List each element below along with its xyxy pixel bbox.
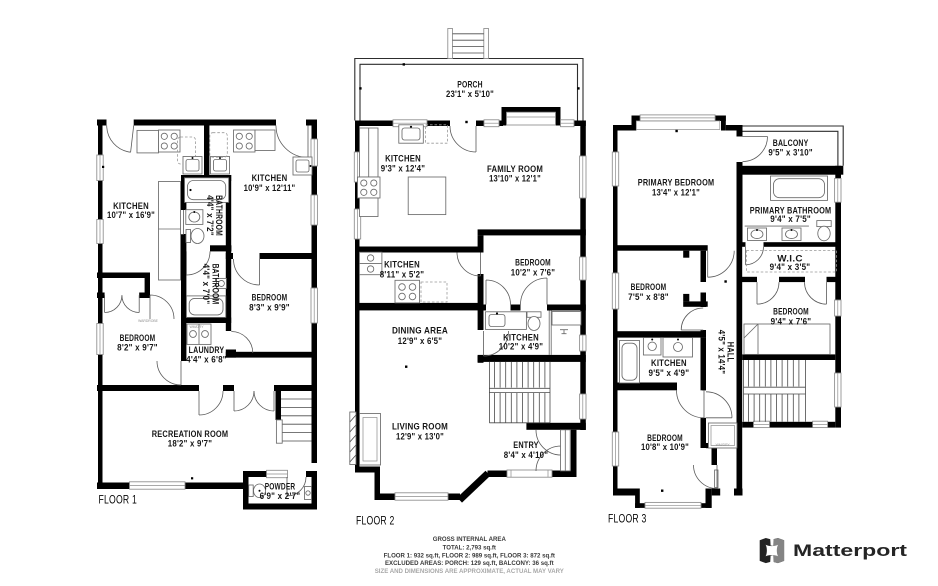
svg-text:BATHROOM: BATHROOM — [210, 264, 220, 305]
svg-text:12'9" x 13'0": 12'9" x 13'0" — [396, 431, 444, 441]
svg-text:WM/DRY: WM/DRY — [716, 443, 731, 447]
svg-text:GROSS INTERNAL AREA: GROSS INTERNAL AREA — [433, 536, 507, 543]
svg-text:10'2" x 7'6": 10'2" x 7'6" — [511, 267, 555, 277]
svg-text:13'4" x 12'1": 13'4" x 12'1" — [652, 188, 700, 198]
svg-text:4'4" x 7'2": 4'4" x 7'2" — [205, 195, 215, 236]
svg-text:KITCHEN: KITCHEN — [651, 358, 687, 368]
svg-text:BEDROOM: BEDROOM — [252, 293, 288, 303]
svg-text:4'4" x 7'0": 4'4" x 7'0" — [201, 264, 211, 305]
svg-text:FLOOR 3: FLOOR 3 — [608, 512, 647, 526]
svg-text:TOTAL: 2,793 sq.ft: TOTAL: 2,793 sq.ft — [443, 544, 496, 551]
svg-text:18'2" x 9'7": 18'2" x 9'7" — [168, 438, 212, 448]
svg-text:4'4" x 6'8": 4'4" x 6'8" — [186, 354, 227, 364]
svg-text:10'7" x 16'9": 10'7" x 16'9" — [107, 210, 155, 220]
svg-text:FLOOR 1: FLOOR 1 — [99, 493, 138, 507]
svg-text:KITCHEN: KITCHEN — [384, 259, 420, 269]
svg-text:10'2" x 4'9": 10'2" x 4'9" — [499, 341, 543, 351]
svg-text:9'4" x 3'5": 9'4" x 3'5" — [770, 262, 811, 272]
svg-text:FLOOR 2: FLOOR 2 — [356, 514, 395, 528]
svg-text:KITCHEN: KITCHEN — [252, 173, 288, 183]
svg-text:WARDROBE: WARDROBE — [138, 319, 159, 323]
svg-text:9'5" x 3'10": 9'5" x 3'10" — [768, 147, 812, 157]
svg-text:13'10" x 12'1": 13'10" x 12'1" — [489, 173, 541, 183]
svg-text:Matterport: Matterport — [793, 541, 908, 560]
svg-text:6'9" x 2'7": 6'9" x 2'7" — [260, 491, 301, 501]
svg-text:BEDROOM: BEDROOM — [515, 257, 551, 267]
svg-text:9'4" x 7'5": 9'4" x 7'5" — [770, 214, 811, 224]
svg-text:7'5" x 8'8": 7'5" x 8'8" — [628, 292, 669, 302]
svg-text:10'8" x 10'9": 10'8" x 10'9" — [641, 442, 689, 452]
svg-text:SIZE AND DIMENSIONS ARE APPROX: SIZE AND DIMENSIONS ARE APPROXIMATE, ACT… — [375, 568, 564, 575]
svg-text:8'3" x 9'9": 8'3" x 9'9" — [249, 302, 290, 312]
svg-text:FAMILY ROOM: FAMILY ROOM — [487, 164, 543, 174]
svg-text:BEDROOM: BEDROOM — [120, 333, 156, 343]
svg-text:8'4" x 4'10": 8'4" x 4'10" — [504, 450, 548, 460]
svg-text:12'9" x 6'5": 12'9" x 6'5" — [398, 336, 442, 346]
svg-text:10'9" x 12'11": 10'9" x 12'11" — [244, 183, 296, 193]
svg-text:8'11" x 5'2": 8'11" x 5'2" — [380, 269, 424, 279]
svg-text:DINING AREA: DINING AREA — [392, 325, 448, 335]
svg-text:KITCHEN: KITCHEN — [385, 153, 421, 163]
svg-text:FLOOR 1: 932 sq.ft, FLOOR 2: 9: FLOOR 1: 932 sq.ft, FLOOR 2: 989 sq.ft, … — [384, 552, 555, 559]
svg-text:9'4" x 7'6": 9'4" x 7'6" — [771, 316, 812, 326]
svg-text:4'5" x 14'4": 4'5" x 14'4" — [716, 330, 726, 374]
svg-text:9'5" x 4'9": 9'5" x 4'9" — [649, 368, 690, 378]
svg-text:WM/DRY: WM/DRY — [189, 325, 204, 329]
svg-text:ENTRY: ENTRY — [513, 440, 539, 450]
svg-text:LAUNDRY: LAUNDRY — [189, 345, 225, 355]
svg-text:9'3" x 12'4": 9'3" x 12'4" — [381, 163, 425, 173]
svg-text:PORCH: PORCH — [457, 79, 483, 89]
svg-text:BEDROOM: BEDROOM — [773, 306, 809, 316]
svg-text:LIVING ROOM: LIVING ROOM — [392, 421, 448, 431]
svg-text:PRIMARY BEDROOM: PRIMARY BEDROOM — [638, 178, 715, 188]
svg-text:23'1" x 5'10": 23'1" x 5'10" — [446, 89, 494, 99]
svg-text:8'2" x 9'7": 8'2" x 9'7" — [117, 343, 158, 353]
svg-text:BEDROOM: BEDROOM — [631, 282, 667, 292]
svg-text:EXCLUDED AREAS: PORCH: 129 sq.: EXCLUDED AREAS: PORCH: 129 sq.ft, BALCON… — [385, 560, 554, 567]
